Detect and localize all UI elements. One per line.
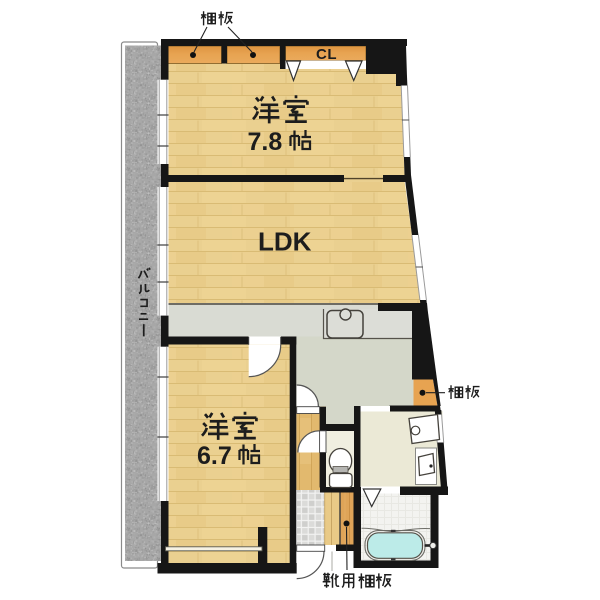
svg-text:6.7: 6.7 bbox=[197, 442, 232, 470]
svg-text:7.8: 7.8 bbox=[248, 128, 283, 156]
svg-text:LDK: LDK bbox=[258, 227, 312, 257]
svg-text:CL: CL bbox=[316, 46, 337, 63]
